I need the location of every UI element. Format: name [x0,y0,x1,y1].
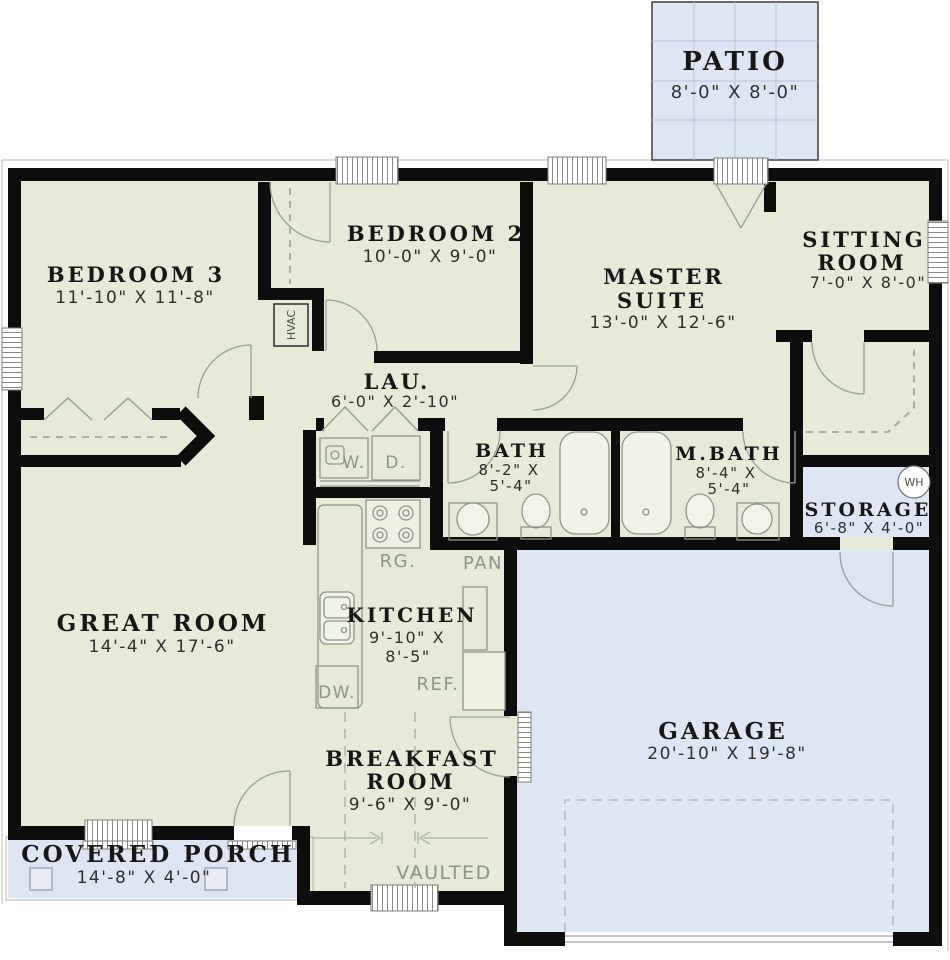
mbath-dims-2: 5'-4" [707,480,750,498]
floor-plan-svg: PATIO 8'-0" X 8'-0" [0,0,950,960]
window-sitting-right [928,221,948,283]
window-bedroom3-left [2,328,22,390]
garage-dims: 20'-10" X 19'-8" [647,744,806,764]
range [366,500,420,548]
kitchen-dims-2: 8'-5" [385,647,430,666]
pantry-label: PAN [463,553,503,574]
bedroom2-label: BEDROOM 2 [347,221,525,246]
garage-step-hatch [518,712,531,782]
bedroom3-label: BEDROOM 3 [47,262,225,287]
water-heater-label: WH [904,476,923,489]
window-bedroom2-top [336,157,398,184]
laundry-label: LAU. [364,369,431,394]
kitchen-label: KITCHEN [347,603,478,627]
master-label-1: MASTER [603,264,725,289]
floor-plan-page: PATIO 8'-0" X 8'-0" [0,0,950,960]
hvac-label: HVAC [285,310,298,340]
dishwasher-label: DW. [318,683,356,703]
sitting-label-1: SITTING [802,227,925,252]
mbath-label: M.BATH [675,443,783,465]
porch-dims: 14'-8" X 4'-0" [77,868,212,888]
bedroom2-dims: 10'-0" X 9'-0" [363,247,498,267]
patio: PATIO 8'-0" X 8'-0" [652,2,818,160]
window-master-top [548,157,606,184]
patio-dims: 8'-0" X 8'-0" [671,82,800,103]
window-breakfast-bottom [371,885,438,911]
breakfast-dims: 9'-6" X 9'-0" [349,795,471,815]
refrigerator [463,652,505,710]
storage-label: STORAGE [805,499,932,521]
storage-dims: 6'-8" X 4'-0" [814,519,924,537]
garage-door-opening [565,932,893,948]
breakfast-label-1: BREAKFAST [325,746,499,771]
laundry-dims: 6'-0" X 2'-10" [331,392,459,411]
sitting-label-2: ROOM [817,250,906,275]
master-dims: 13'-0" X 12'-6" [589,313,736,333]
kitchen-dims-1: 9'-10" X [369,628,445,647]
refrigerator-label: REF. [416,674,459,695]
garage-label: GARAGE [658,718,788,745]
front-door-opening [234,826,292,840]
bath-label: BATH [475,440,549,462]
sitting-dims: 7'-0" X 8'-0" [810,273,926,292]
bath-dims-2: 5'-4" [489,477,532,495]
vaulted-label: VAULTED [396,862,491,884]
greatroom-label: GREAT ROOM [57,610,270,637]
patio-label: PATIO [682,47,788,77]
bedroom3-dims: 11'-10" X 11'-8" [55,288,214,308]
bath-tub [560,432,609,534]
porch-label: COVERED PORCH [21,841,294,868]
washer-label: W. [342,453,365,473]
range-label: RG. [380,551,417,572]
mbath-tub [622,432,671,534]
dryer-label: D. [385,453,407,473]
greatroom-dims: 14'-4" X 17'-6" [88,637,235,657]
patio-door-threshold [714,158,768,184]
master-label-2: SUITE [617,288,707,313]
breakfast-label-2: ROOM [366,769,455,794]
